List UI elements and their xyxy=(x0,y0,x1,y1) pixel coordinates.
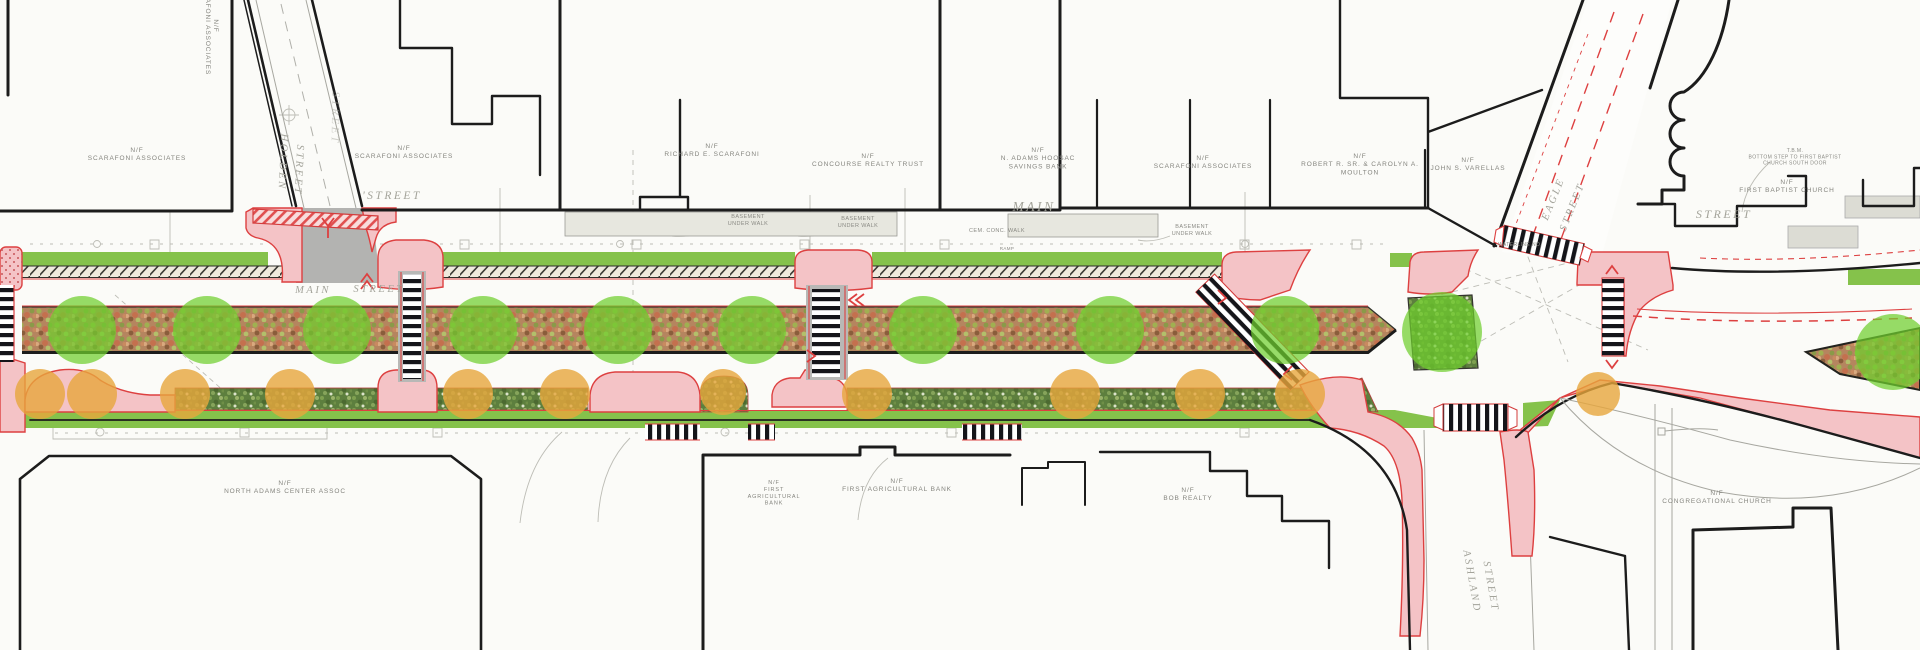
parcel-bob-realty: N/FBOB REALTY xyxy=(1163,487,1212,502)
tree-canopy xyxy=(889,296,957,364)
shrub-canopy xyxy=(1576,372,1620,416)
parcel-concourse: N/FCONCOURSE REALTY TRUST xyxy=(812,153,924,168)
street-holden-2: STREET xyxy=(292,144,306,196)
shrub-canopy xyxy=(67,369,117,419)
tree-canopy xyxy=(1402,292,1482,372)
parcel-agri-bank-small: N/FFIRSTAGRICULTURALBANK xyxy=(748,480,801,507)
street-main-w2: STREET xyxy=(353,284,404,295)
street-e: STREET xyxy=(1696,207,1752,221)
parking-meter-symbol xyxy=(1122,370,1134,380)
parking-meter-symbol xyxy=(1239,370,1251,380)
shrub-canopy xyxy=(700,369,746,415)
basement-under-walk-zone xyxy=(1008,214,1158,237)
shrub-canopy xyxy=(443,369,493,419)
stippled-bulbout xyxy=(0,247,22,290)
crosswalk-ashland xyxy=(1434,404,1517,431)
note-basement-1: BASEMENTUNDER WALK xyxy=(728,214,768,227)
street-faint-vert: STREET xyxy=(329,91,342,144)
parking-meter-symbol xyxy=(341,370,353,380)
north-lawn-strip xyxy=(872,252,1222,267)
shrub-canopy xyxy=(160,369,210,419)
parking-meter-symbol xyxy=(931,370,943,380)
tree-canopy xyxy=(303,296,371,364)
parcel-agri-bank: N/FFIRST AGRICULTURAL BANK xyxy=(842,478,952,493)
street-main-w: MAIN xyxy=(294,285,331,296)
street-main-big: MAIN xyxy=(1012,199,1056,214)
parking-meter-symbol xyxy=(1370,277,1382,287)
tree-canopy xyxy=(173,296,241,364)
parking-meter-symbol xyxy=(1708,272,1723,286)
parking-meter-symbol xyxy=(218,370,230,380)
street-ashland-2: STREET xyxy=(1481,560,1501,612)
crosswalk-midblock xyxy=(806,285,848,380)
parking-meter-symbol xyxy=(1799,386,1815,401)
shrub-canopy xyxy=(1050,369,1100,419)
midblock-bulbout-north xyxy=(795,250,872,291)
south-bulbout xyxy=(590,372,700,412)
note-cem-walk: CEM. CONC. WALK xyxy=(969,228,1025,234)
na-center-building xyxy=(20,456,481,650)
ashland-east-strip xyxy=(1500,430,1535,556)
parking-meter-symbol xyxy=(1324,277,1336,287)
note-basement-2: BASEMENTUNDER WALK xyxy=(838,216,878,229)
bob-realty-building xyxy=(1100,452,1329,568)
agricultural-bank-building xyxy=(703,447,1010,650)
shrub-canopy xyxy=(540,369,590,419)
parking-meter-symbol xyxy=(1755,275,1770,289)
parcel-scarafoni-b: N/FSCARAFONI ASSOCIATES xyxy=(355,145,453,160)
tree-canopy xyxy=(718,296,786,364)
tree-canopy xyxy=(449,296,517,364)
congregational-church-building xyxy=(1693,508,1838,650)
parcel-richard-scarafoni: N/FRICHARD E. SCARAFONI xyxy=(664,143,759,158)
shrub-canopy xyxy=(15,369,65,419)
parking-meter-symbol xyxy=(259,370,271,380)
north-lawn-strip xyxy=(22,252,268,267)
north-lawn-strip-east xyxy=(1848,269,1920,285)
street-tick: 'STREET xyxy=(362,190,422,202)
site-plan: N/FSCARAFONI ASSOCIATESN/FSCARAFONI ASSO… xyxy=(0,0,1920,650)
street-ashland: ASHLAND xyxy=(1460,548,1482,614)
shrub-canopy xyxy=(842,369,892,419)
parcel-scarafoni-vert: N/FSCARAFONI ASSOCIATES xyxy=(204,0,219,75)
note-ramp: RAMP xyxy=(1000,246,1015,251)
eagle-west-bulbout xyxy=(1222,250,1310,300)
eagle-east-apron xyxy=(1577,252,1673,356)
tree-canopy xyxy=(48,296,116,364)
parcel-na-center: N/FNORTH ADAMS CENTER ASSOC xyxy=(224,480,346,495)
parking-meter-symbol xyxy=(886,370,898,380)
tree-canopy xyxy=(584,296,652,364)
crosswalk-west-edge xyxy=(0,285,14,362)
scored-walk-band xyxy=(22,266,1228,279)
note-tbm: T.B.M.BOTTOM STEP TO FIRST BAPTISTCHURCH… xyxy=(1749,148,1842,167)
parking-meter-symbol xyxy=(134,370,146,380)
shrub-canopy xyxy=(265,369,315,419)
streetscape-plan-canvas: { "drawing": { "kind": "streetscape impr… xyxy=(0,0,1920,650)
parking-meter-symbol xyxy=(1161,370,1173,380)
parcel-cong-church: N/FCONGREGATIONAL CHURCH xyxy=(1662,490,1772,505)
parcel-moulton: N/FROBERT R. SR. & CAROLYN A.MOULTON xyxy=(1301,153,1419,176)
note-basement-3: BASEMENTUNDER WALK xyxy=(1172,224,1212,237)
north-lawn-strip xyxy=(1390,253,1412,267)
note-waterline: WATERLINE NO. xyxy=(1498,242,1542,248)
north-lawn-strip xyxy=(443,252,795,267)
parcel-varellas: N/FJOHN S. VARELLAS xyxy=(1431,157,1506,172)
eagle-street xyxy=(1502,0,1672,262)
eagle-south-apron xyxy=(1408,250,1478,294)
crosswalk-eagle-east xyxy=(1602,278,1624,356)
parcel-scarafoni-a: N/FSCARAFONI ASSOCIATES xyxy=(88,147,186,162)
shrub-canopy xyxy=(1175,369,1225,419)
tree-canopy xyxy=(1251,296,1319,364)
parking-meter-symbol xyxy=(1800,273,1815,287)
shrub-canopy xyxy=(1275,369,1325,419)
tree-canopy xyxy=(1076,296,1144,364)
parcel-scarafoni-c: N/FSCARAFONI ASSOCIATES xyxy=(1154,155,1252,170)
parcel-hoosac-bank: N/FN. ADAMS HOOSACSAVINGS BANK xyxy=(1001,147,1076,170)
